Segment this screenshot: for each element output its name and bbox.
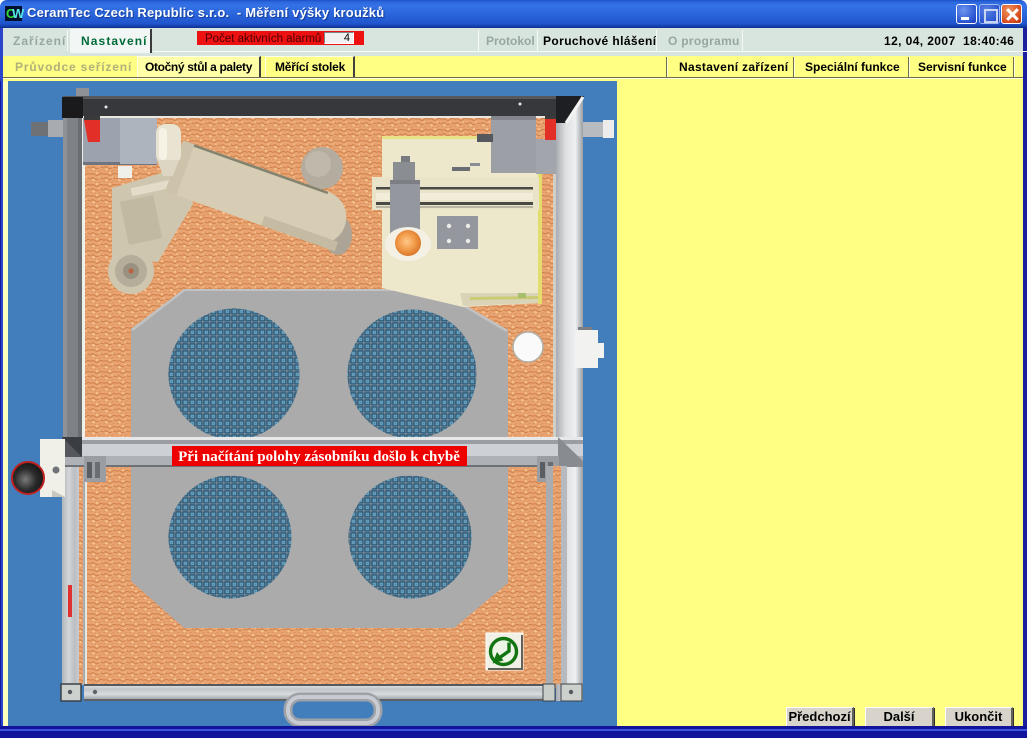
svg-text:Při načítání polohy zásobníku: Při načítání polohy zásobníku došlo k ch… bbox=[178, 449, 460, 465]
